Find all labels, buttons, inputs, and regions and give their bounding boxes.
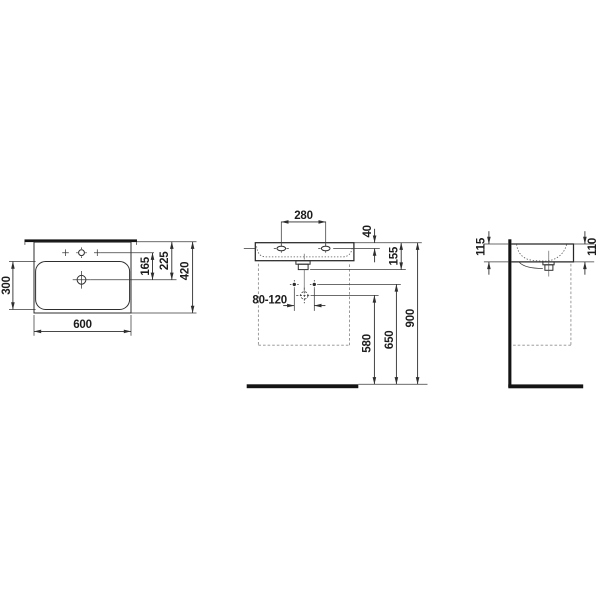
- dim-label-overall-width: 600: [73, 319, 92, 331]
- dim-bowl-depth: 300: [1, 262, 13, 310]
- technical-drawing: 300 165 225 420 600: [0, 0, 600, 600]
- drain-symbol: [73, 271, 91, 289]
- dim-label-floor-to-rim: 900: [405, 309, 417, 328]
- bowl-outline: [36, 262, 130, 310]
- basin-profile: [511, 244, 573, 262]
- dim-label-tap-to-drain: 165: [140, 256, 152, 275]
- dim-rim-to-tap: 40: [362, 225, 374, 262]
- dim-label-bowl-depth: 300: [1, 276, 13, 295]
- dim-label-rim-to-tap: 40: [362, 225, 374, 237]
- drain-tailpiece: [296, 261, 310, 270]
- dim-label-rim-to-outlet: 155: [388, 246, 400, 265]
- dim-rim-to-outlet: 155: [388, 243, 401, 270]
- dim-back-to-drain: 225: [159, 242, 172, 280]
- basin-outline: [255, 243, 354, 261]
- dim-label-height-front: 110: [587, 238, 599, 256]
- extension-lines: [484, 244, 594, 262]
- dim-label-back-to-drain: 225: [159, 251, 171, 270]
- floor-line: [247, 384, 359, 388]
- tap-hole-right: [318, 244, 330, 253]
- floor-line: [508, 384, 583, 388]
- dim-label-overall-depth: 420: [180, 262, 192, 281]
- bowl-underside-line: [519, 262, 543, 269]
- tap-position-cross-right: [94, 249, 101, 256]
- bowl-hidden-line: [517, 244, 567, 261]
- dim-label-fixing-range: 80-120: [252, 294, 287, 306]
- dim-label-height-rear: 115: [475, 237, 487, 256]
- dim-tap-to-drain: 165: [140, 253, 152, 280]
- dim-height-rear: 115: [475, 231, 489, 275]
- dim-tap-spacing: 280: [281, 210, 325, 222]
- dim-floor-to-drain: 580: [362, 295, 375, 384]
- dim-floor-to-fixings: 650: [384, 284, 397, 384]
- dim-label-tap-spacing: 280: [294, 210, 313, 222]
- dim-overall-depth: 420: [180, 242, 193, 313]
- fixing-bolt-left: [290, 280, 299, 289]
- front-view: 280 40 155 80-120 580 650 900: [244, 210, 428, 388]
- fixing-bolt-right: [310, 280, 319, 289]
- dim-label-floor-to-drain: 580: [362, 334, 374, 353]
- dim-floor-to-rim: 900: [405, 243, 418, 385]
- top-view: 300 165 225 420 600: [1, 239, 197, 335]
- side-view: 115 110: [475, 231, 599, 388]
- drawing-canvas: 300 165 225 420 600: [0, 0, 600, 600]
- installation-outline: [511, 264, 571, 345]
- wall-line: [508, 239, 511, 387]
- dim-height-front: 110: [585, 231, 599, 275]
- tap-position-cross-left: [62, 249, 69, 256]
- tap-hole-symbol: [76, 247, 87, 258]
- extension-lines: [281, 222, 422, 311]
- dim-label-floor-to-fixings: 650: [384, 331, 396, 350]
- dim-overall-width: 600: [34, 319, 131, 331]
